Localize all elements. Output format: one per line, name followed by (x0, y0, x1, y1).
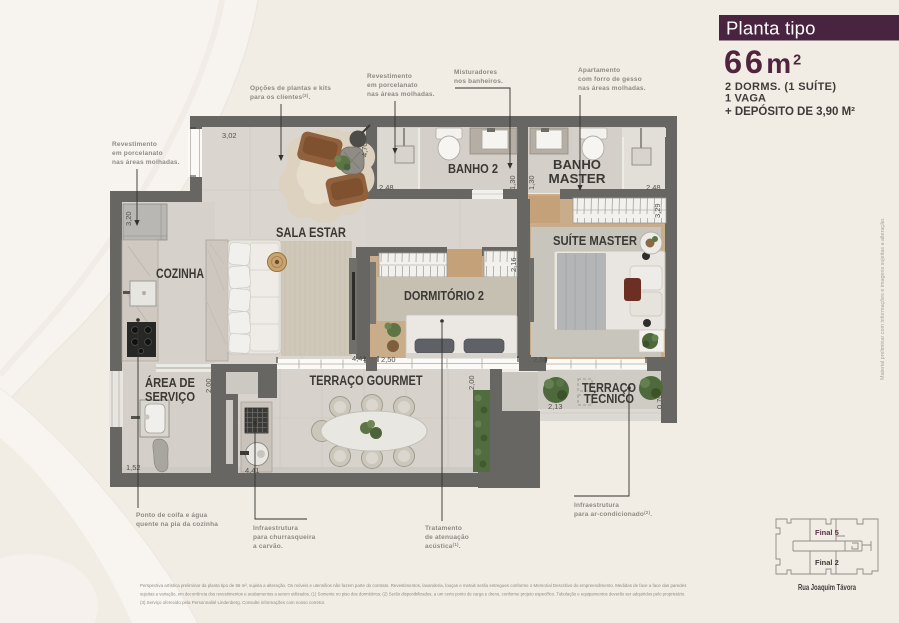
svg-text:BANHO: BANHO (553, 158, 601, 172)
svg-text:para churrasqueira: para churrasqueira (253, 534, 316, 541)
svg-text:SUÍTE MASTER: SUÍTE MASTER (553, 233, 638, 248)
svg-text:2,48: 2,48 (646, 183, 661, 192)
svg-text:de atenuação: de atenuação (425, 534, 469, 541)
svg-text:TERRAÇO GOURMET: TERRAÇO GOURMET (310, 373, 424, 388)
svg-text:Final 2: Final 2 (815, 558, 839, 567)
svg-text:4,41: 4,41 (352, 354, 367, 363)
svg-text:Misturadores: Misturadores (454, 69, 497, 76)
svg-text:nos banheiros.: nos banheiros. (454, 78, 503, 85)
svg-text:(3) Serviço oferecido pela Per: (3) Serviço oferecido pela Personnalité … (140, 600, 325, 605)
svg-text:nas áreas molhadas.: nas áreas molhadas. (367, 91, 435, 98)
svg-text:Final 5: Final 5 (815, 528, 839, 537)
svg-text:+ DEPÓSITO DE 3,90 M²: + DEPÓSITO DE 3,90 M² (725, 105, 855, 118)
svg-text:SALA ESTAR: SALA ESTAR (276, 225, 346, 240)
svg-text:Tratamento: Tratamento (425, 525, 462, 532)
svg-text:2,50: 2,50 (381, 355, 396, 364)
svg-text:quente na pia da cozinha: quente na pia da cozinha (136, 521, 218, 528)
svg-text:2,00: 2,00 (204, 378, 213, 393)
svg-text:COZINHA: COZINHA (156, 266, 204, 281)
svg-text:ÁREA DE: ÁREA DE (145, 375, 195, 390)
svg-text:1 VAGA: 1 VAGA (725, 93, 766, 105)
svg-text:para ar-condicionado(2).: para ar-condicionado(2). (574, 510, 652, 518)
svg-text:MASTER: MASTER (549, 172, 606, 186)
svg-text:TÉCNICO: TÉCNICO (584, 391, 634, 406)
svg-text:em porcelanato: em porcelanato (112, 150, 163, 157)
svg-text:BANHO 2: BANHO 2 (448, 162, 498, 176)
svg-text:para os clientes(3).: para os clientes(3). (250, 93, 310, 101)
svg-text:em porcelanato: em porcelanato (367, 82, 418, 89)
svg-text:Apartamento: Apartamento (578, 67, 620, 74)
svg-text:4,70: 4,70 (360, 142, 369, 157)
svg-text:Opções de plantas e kits: Opções de plantas e kits (250, 85, 331, 92)
svg-text:3,29: 3,29 (653, 203, 662, 218)
svg-text:Rua Joaquim Távora: Rua Joaquim Távora (798, 583, 856, 592)
svg-text:2,13: 2,13 (548, 402, 563, 411)
svg-text:com forro de gesso: com forro de gesso (578, 76, 642, 83)
svg-text:Revestimento: Revestimento (367, 73, 412, 80)
svg-text:1,30: 1,30 (508, 175, 517, 190)
svg-text:0,70: 0,70 (655, 394, 664, 409)
svg-text:Ponto de coifa e água: Ponto de coifa e água (136, 512, 208, 519)
svg-text:a carvão.: a carvão. (253, 543, 283, 550)
svg-text:Revestimento: Revestimento (112, 141, 157, 148)
svg-text:Material preliminar com inform: Material preliminar com informações e im… (880, 217, 886, 380)
svg-text:2,16: 2,16 (509, 257, 518, 272)
svg-text:66m2: 66m2 (724, 44, 801, 80)
svg-text:3,02: 3,02 (222, 131, 237, 140)
svg-text:DORMITÓRIO 2: DORMITÓRIO 2 (404, 288, 484, 303)
svg-text:Infraestrutura: Infraestrutura (574, 502, 619, 509)
svg-text:1,30: 1,30 (527, 175, 536, 190)
svg-text:nas áreas molhadas.: nas áreas molhadas. (578, 85, 646, 92)
svg-text:2,48: 2,48 (379, 183, 394, 192)
svg-text:Perspectiva artística prelimin: Perspectiva artística preliminar da plan… (140, 583, 687, 588)
svg-text:sujeitas a variação, em decorr: sujeitas a variação, em decorrência dos … (140, 591, 685, 596)
svg-text:2,50: 2,50 (533, 355, 548, 364)
svg-text:2 DORMS. (1 SUÍTE): 2 DORMS. (1 SUÍTE) (725, 80, 836, 93)
svg-text:4,41: 4,41 (245, 466, 260, 475)
svg-text:SERVIÇO: SERVIÇO (145, 389, 195, 404)
svg-text:Planta tipo: Planta tipo (726, 18, 816, 39)
svg-text:Infraestrutura: Infraestrutura (253, 525, 298, 532)
svg-text:nas áreas molhadas.: nas áreas molhadas. (112, 159, 180, 166)
svg-text:3,20: 3,20 (124, 211, 133, 226)
svg-text:2,00: 2,00 (467, 375, 476, 390)
